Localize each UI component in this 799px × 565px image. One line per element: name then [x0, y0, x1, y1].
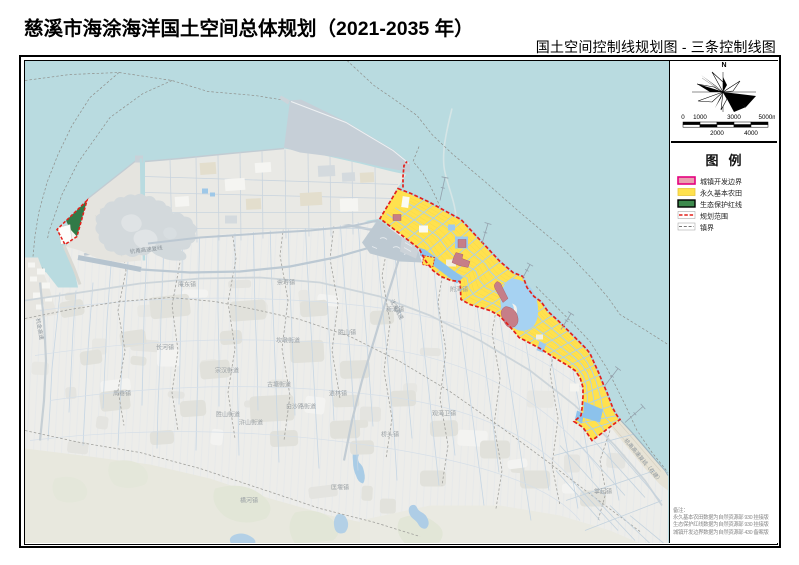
svg-text:城镇开发边界: 城镇开发边界	[700, 177, 742, 186]
svg-text:0: 0	[681, 114, 685, 121]
svg-text:逍林镇: 逍林镇	[329, 389, 347, 397]
svg-text:横河镇: 横河镇	[240, 496, 258, 504]
svg-text:生态保护红线: 生态保护红线	[700, 200, 742, 209]
svg-text:永久基本农田: 永久基本农田	[700, 189, 742, 198]
svg-text:胜山镇: 胜山镇	[338, 328, 356, 336]
svg-text:3000: 3000	[727, 114, 741, 121]
svg-text:2000: 2000	[710, 130, 724, 137]
svg-text:白沙路街道: 白沙路街道	[286, 402, 316, 410]
svg-text:长河镇: 长河镇	[156, 343, 174, 351]
svg-text:庵东镇: 庵东镇	[178, 280, 196, 288]
svg-text:古塘街道: 古塘街道	[267, 380, 291, 388]
svg-text:1000: 1000	[693, 114, 707, 121]
svg-text:浒山街道: 浒山街道	[239, 418, 263, 426]
svg-text:周巷镇: 周巷镇	[113, 389, 131, 397]
svg-text:4000: 4000	[744, 130, 758, 137]
svg-text:附海镇: 附海镇	[450, 285, 468, 293]
svg-text:掌起镇: 掌起镇	[594, 487, 612, 495]
svg-text:崇寿镇: 崇寿镇	[277, 278, 295, 286]
svg-text:匡堰镇: 匡堰镇	[331, 483, 349, 491]
svg-text:5000m: 5000m	[759, 114, 775, 121]
svg-text:坎墩街道: 坎墩街道	[276, 336, 300, 344]
svg-text:规划范围: 规划范围	[700, 212, 728, 221]
svg-text:观海卫镇: 观海卫镇	[432, 409, 456, 417]
svg-text:桥头镇: 桥头镇	[381, 430, 399, 438]
svg-text:胜山街道: 胜山街道	[216, 410, 240, 418]
svg-text:宗汉街道: 宗汉街道	[215, 366, 239, 374]
svg-text:镇界: 镇界	[700, 223, 714, 232]
